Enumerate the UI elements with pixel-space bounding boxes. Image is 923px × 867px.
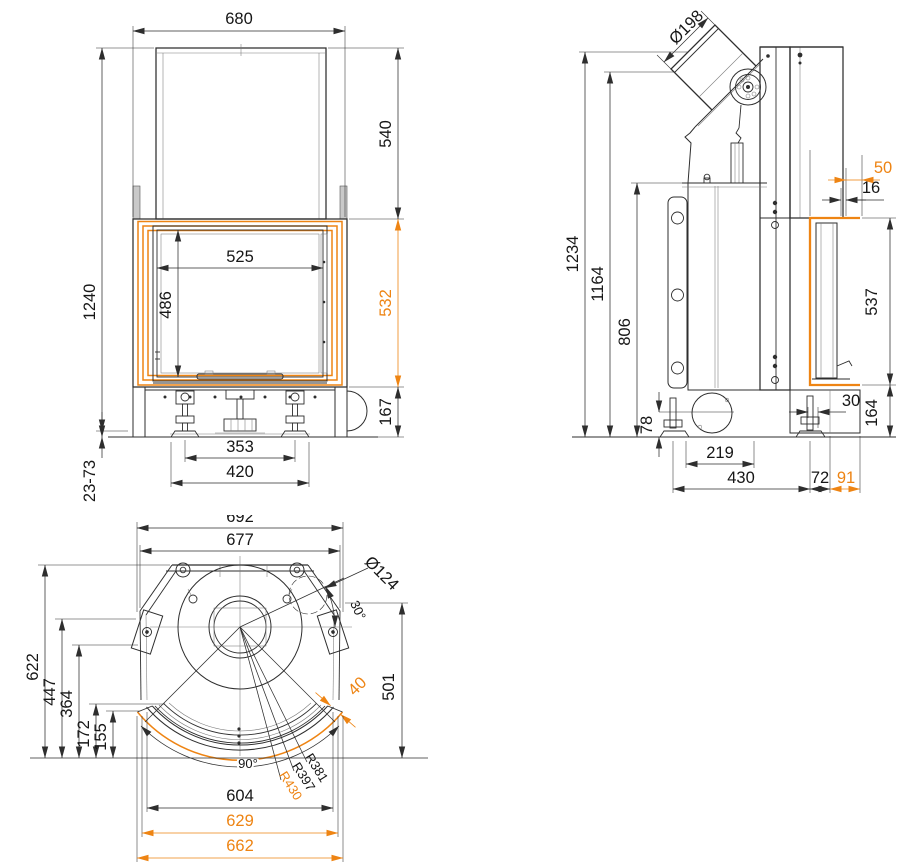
dim-side-frame-depth: 91	[837, 469, 855, 487]
dim-front-height-overall: 1240	[81, 284, 99, 321]
dim-front-feet-centers: 353	[226, 438, 254, 456]
dim-side-frame-offset: 50	[874, 159, 892, 177]
dim-front-leveling-range: 23-73	[81, 460, 99, 502]
dim-side-height-firebox-top: 806	[616, 318, 634, 346]
dim-plan-front-outer: 662	[226, 837, 254, 855]
dim-front-hood-height: 540	[377, 120, 395, 148]
plan-view: 692 677 30° Ø124 622 447 364 172	[10, 515, 450, 867]
dim-plan-front-mid: 629	[226, 812, 254, 830]
dim-side-door-height: 537	[863, 288, 881, 316]
dim-side-base-inner-depth: 219	[706, 444, 734, 462]
dim-plan-width-overall: 692	[226, 515, 254, 526]
plan-body	[131, 556, 352, 756]
dim-side-mid-depth: 72	[811, 469, 829, 487]
back-heat-shield	[668, 197, 687, 388]
dim-side-glass-offset: 16	[862, 179, 880, 197]
dim-plan-width-inner: 677	[226, 531, 254, 549]
front-dimensions: 680 540 532 167 525 486 1240 23-	[81, 10, 404, 502]
dim-side-height-flue-mouth: 1164	[589, 266, 607, 301]
side-hood-flue	[671, 25, 766, 183]
dim-plan-connector-diameter: Ø124	[361, 553, 402, 594]
dim-side-height-overall: 1234	[564, 236, 582, 273]
dim-plan-depth-center: 364	[58, 690, 76, 718]
dim-side-flue-diameter: Ø198	[666, 7, 707, 48]
dim-plan-depth-front-inner: 172	[75, 720, 93, 748]
side-front-foot	[796, 396, 825, 437]
dim-front-feet-outer: 420	[226, 463, 254, 481]
counterweight-cable	[731, 105, 743, 183]
dim-plan-connector-angle: 30°	[347, 598, 369, 622]
dim-side-front-base-height: 164	[863, 399, 881, 427]
side-rear-foot	[660, 398, 689, 437]
front-base	[108, 387, 378, 437]
highlighted-door-profile	[810, 218, 860, 385]
dim-side-base-depth: 430	[727, 469, 755, 487]
dim-front-glass-width: 525	[226, 248, 254, 266]
drawing-page: 680 540 532 167 525 486 1240 23-	[0, 0, 923, 867]
dim-plan-depth-front-outer: 155	[92, 723, 110, 751]
dim-front-glass-height: 486	[157, 291, 175, 319]
dim-front-frame-height: 532	[377, 289, 395, 317]
dim-side-foot-offset: 30	[842, 392, 860, 410]
dim-front-width-overall: 680	[225, 10, 253, 28]
dim-side-intake-height: 78	[638, 416, 656, 434]
right-mount-bracket	[317, 610, 348, 654]
dim-plan-depth-right: 501	[380, 673, 398, 701]
front-left-foot	[171, 391, 199, 437]
side-dimensions: Ø198 1234 1164 806 78 50	[564, 7, 896, 493]
dim-plan-depth-overall: 622	[24, 653, 42, 681]
front-view: 680 540 532 167 525 486 1240 23-	[0, 0, 470, 505]
dim-plan-front-inner: 604	[226, 787, 254, 805]
front-hood	[133, 44, 347, 219]
side-view: Ø198 1234 1164 806 78 50	[555, 0, 923, 505]
side-door	[810, 218, 860, 385]
dim-plan-band-width: 40	[345, 674, 371, 700]
left-mount-bracket	[131, 610, 162, 654]
dim-plan-depth-bracket: 447	[41, 678, 59, 706]
front-right-foot	[281, 391, 309, 437]
dim-front-base-height: 167	[377, 398, 395, 426]
